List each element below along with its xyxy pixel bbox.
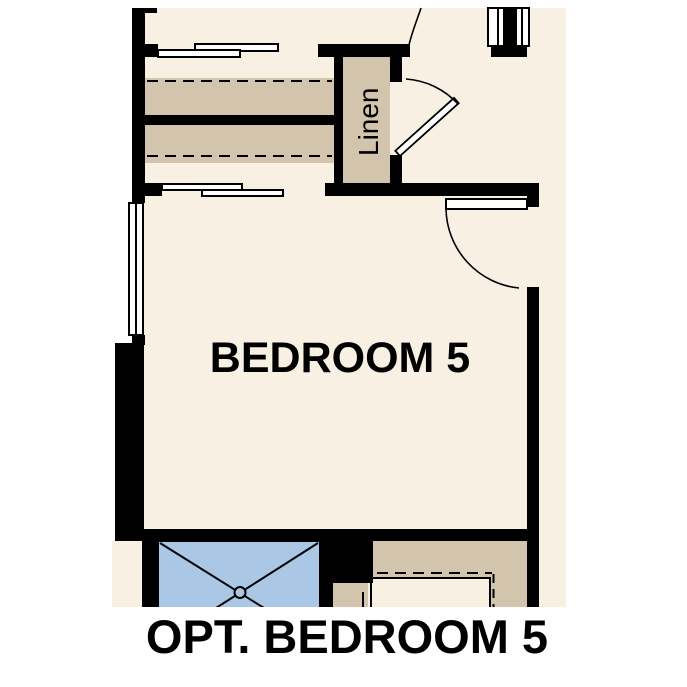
wall-left-lower	[115, 343, 144, 541]
tub-inset	[371, 578, 490, 609]
wall-closet-stub-left	[144, 44, 158, 57]
wall-closet-divider	[145, 115, 334, 125]
linen-closet-label: Linen	[353, 87, 384, 156]
floor-area-bath-left	[112, 541, 142, 607]
floor-plan-drawing: BEDROOM 5 Linen	[0, 0, 687, 687]
floor-plan: BEDROOM 5 Linen	[112, 8, 566, 643]
wall-bedroom-top	[325, 183, 539, 196]
bypass-door-upper-front	[158, 50, 240, 57]
wall-right	[527, 287, 539, 607]
wall-linen-right-upper	[390, 57, 402, 82]
wall-bedroom-bottom	[115, 529, 527, 541]
bypass-door-lower-front	[202, 190, 283, 196]
closet-shelf-upper	[145, 78, 334, 115]
wall-shower-right-block	[320, 541, 373, 583]
caption-opt-bedroom-5: OPT. BEDROOM 5	[146, 613, 548, 660]
window-top-right	[488, 8, 529, 57]
wall-linen-left	[334, 44, 343, 196]
bedroom-door-leaf	[446, 199, 527, 209]
shower-drain	[235, 587, 246, 598]
wall-bedroom-top-left-stub	[144, 183, 162, 196]
wall-linen-right-lower	[390, 155, 402, 183]
window-left	[129, 203, 143, 335]
wall-right-door-jamb	[527, 196, 539, 207]
wall-shower-right	[320, 583, 333, 607]
floor-plan-image: BEDROOM 5 Linen OPT. BEDROOM 5	[0, 0, 687, 687]
wall-left-upper	[132, 8, 145, 203]
room-label-bedroom-5: BEDROOM 5	[210, 334, 470, 382]
wall-bath-left	[142, 541, 158, 607]
wall-closet-top-right	[318, 44, 410, 57]
closet-shelf-lower	[145, 125, 334, 163]
